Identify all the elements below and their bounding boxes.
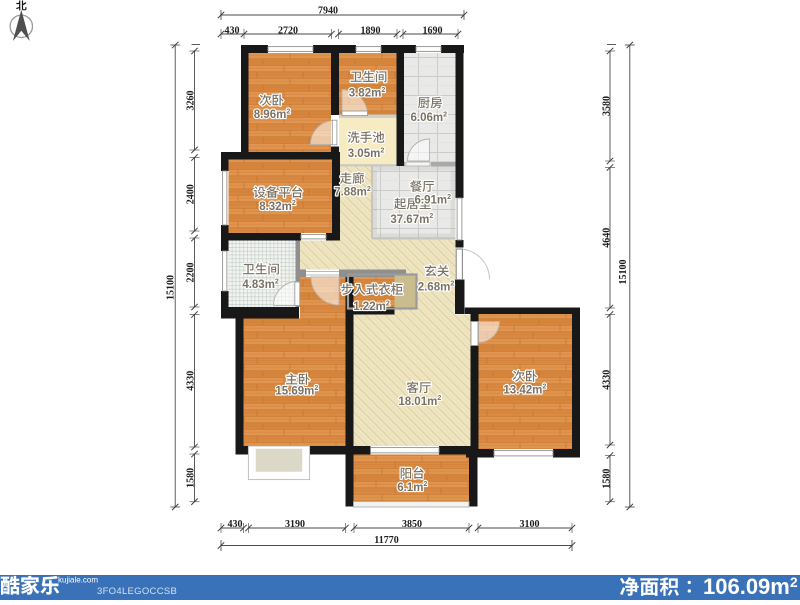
svg-text:3.05m2: 3.05m2 [348,146,385,160]
svg-text:37.67m2: 37.67m2 [390,212,433,226]
svg-text:15100: 15100 [618,260,629,285]
svg-text:3580: 3580 [601,96,612,116]
svg-text:4330: 4330 [185,371,196,391]
svg-text:3850: 3850 [402,519,422,530]
svg-text:1.22m2: 1.22m2 [353,299,390,313]
svg-text:18.01m2: 18.01m2 [398,394,441,408]
svg-text:13.42m2: 13.42m2 [503,382,546,396]
svg-text:4640: 4640 [601,228,612,248]
svg-text:8.96m2: 8.96m2 [254,107,291,121]
svg-text:6.1m2: 6.1m2 [397,480,427,494]
svg-text:106.09m2: 106.09m2 [703,574,798,599]
svg-text:3190: 3190 [285,519,305,530]
svg-text:15.69m2: 15.69m2 [275,384,318,398]
svg-text:3.82m2: 3.82m2 [349,86,386,100]
svg-text:3260: 3260 [185,91,196,111]
svg-text:2200: 2200 [185,263,196,283]
svg-text:7.88m2: 7.88m2 [334,185,371,199]
svg-text:7940: 7940 [318,5,338,16]
svg-text:1690: 1690 [423,25,443,36]
svg-text:6.06m2: 6.06m2 [411,110,448,124]
svg-text:4.83m2: 4.83m2 [242,277,279,291]
svg-text:15100: 15100 [165,275,176,300]
svg-text:430: 430 [225,25,240,36]
svg-text:1890: 1890 [361,25,381,36]
svg-text:2720: 2720 [278,25,298,36]
svg-text:430: 430 [228,519,243,530]
svg-text:3100: 3100 [520,519,540,530]
svg-text:8.32m2: 8.32m2 [259,199,296,213]
svg-text:11770: 11770 [374,535,398,546]
svg-text:2.68m2: 2.68m2 [418,279,455,293]
svg-text:2400: 2400 [185,184,196,204]
svg-text:4330: 4330 [601,370,612,390]
svg-text:kujiale.com: kujiale.com [58,576,98,585]
svg-text:1580: 1580 [185,468,196,488]
svg-text:3FO4LEGOCCSB: 3FO4LEGOCCSB [97,586,177,597]
svg-text:6.91m2: 6.91m2 [415,193,452,207]
svg-text:1580: 1580 [601,469,612,489]
